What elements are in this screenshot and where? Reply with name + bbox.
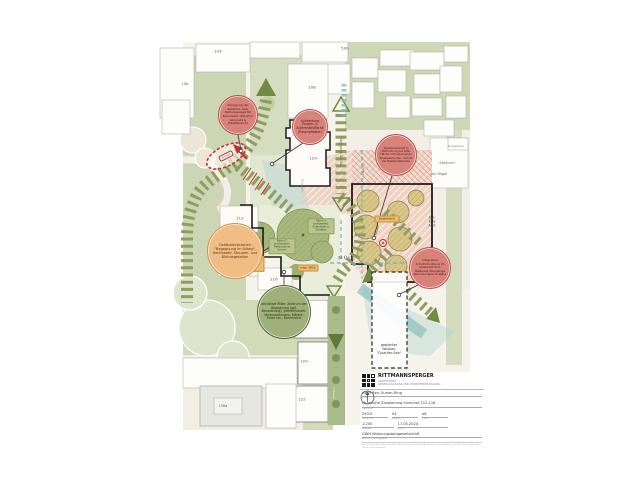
- bubble-vorzonen-text: Gebäudevorzonen "Begegnung im Alltag": H…: [211, 243, 259, 260]
- bubble-mitte-text: attraktive Mitte: Zentrum der Begegnung …: [261, 303, 307, 321]
- bubble-spiellandschaft: Spiellandschaft in Verbindung zur KiTa-F…: [375, 134, 417, 176]
- building-number-104: 104: [214, 49, 222, 54]
- baum1-label: Baum 1 (vorhanden): Aufenthalt im Schatt…: [308, 218, 335, 234]
- zentrum-label: Zentrum: [439, 161, 455, 165]
- title-block: RITTMANNSPERGER ARCHITEKTEN GENERALPLANU…: [360, 372, 484, 438]
- spielbereich-label: Spielbereich: [375, 215, 400, 222]
- uebergang-ost-label: Übergang QZ-Ost: [339, 138, 343, 166]
- site-plan-sheet: 104 50b 10b 108 110 112 114 116 118 120 …: [0, 0, 640, 480]
- bubble-vorzonen: Gebäudevorzonen "Begegnung im Alltag": H…: [207, 223, 263, 279]
- building-number-120: 120: [300, 359, 308, 364]
- south-walkway: [328, 296, 345, 425]
- building-number-50b: 50b: [341, 46, 349, 51]
- plan-number-label: Plan-Nr.: [392, 418, 418, 421]
- bubble-mitte: attraktive Mitte: Zentrum der Begegnung …: [257, 285, 311, 339]
- buergerhaus-label: Bürgerhaus: [448, 144, 463, 148]
- building-number-110: 110: [309, 156, 317, 161]
- firm-logo: [362, 374, 375, 387]
- bubble-zufahrt: Verlegung der Zufahrts- bzw. Rettungsweg…: [218, 95, 258, 135]
- building-number-108: 108: [308, 85, 316, 90]
- building-number-136a: 136a: [219, 404, 228, 408]
- bubble-pausenflaeche-text: Aufwertung Pausen- & Aufenthaltsfläche (…: [296, 120, 324, 135]
- fineprint: Alle Maße sind am Bau zu prüfen. Abweich…: [362, 442, 482, 449]
- site-plan-drawing: [0, 0, 640, 480]
- building-number-116: 116: [270, 277, 278, 282]
- muell-label: MÜLL: [338, 257, 356, 262]
- date-label: Datum: [398, 428, 448, 431]
- title-block-header: RITTMANNSPERGER ARCHITEKTEN GENERALPLANU…: [360, 372, 484, 390]
- fussweg-label: Fußweg: [332, 387, 336, 399]
- am-buegel-label: Am Bügel: [431, 172, 447, 176]
- scale-label: Maßstab: [362, 428, 394, 431]
- feuerwehr-label-1: Feuerwehr: [301, 179, 304, 193]
- eg-kita-label: EG: KiTa ABG: [424, 215, 440, 228]
- project-label: Projekt: [362, 397, 482, 400]
- bubble-schulhof: Integrative Schulhofnutzung im Spielarea…: [409, 247, 451, 289]
- title-block-rows: GWH Ben-Gurion-Ring Projekt räumliche Zi…: [360, 390, 484, 450]
- firm-sub2: GENERALPLANUNG UND PROJEKTENTWICKLUNG: [378, 383, 440, 386]
- muell-option-label: mögl. MÜLL: [298, 264, 319, 271]
- plan-content-label: Planinhalt: [362, 408, 482, 411]
- bubble-schulhof-text: Integrative Schulhofnutzung im Spielarea…: [413, 259, 447, 276]
- index-label: Index: [422, 418, 448, 421]
- bubble-pausenflaeche: Aufwertung Pausen- & Aufenthaltsfläche (…: [292, 109, 328, 145]
- bubble-zufahrt-text: Verlegung der Zufahrts- bzw. Rettungsweg…: [222, 104, 254, 125]
- feuerwehr-label-2: Feuerwehr: [362, 163, 365, 177]
- north-arrow-icon: [360, 390, 375, 405]
- neubau-label: geplanter Neubau "Quartier-See": [374, 343, 405, 357]
- building-number-10b: 10b: [182, 82, 189, 86]
- bubble-spiellandschaft-text: Spiellandschaft in Verbindung zur KiTa-F…: [379, 147, 413, 163]
- building-number-122: 122: [298, 397, 306, 402]
- baum2-label: Baum 2 (vorhanden): Treffpunkt im Grünen: [269, 238, 296, 254]
- firm-name: RITTMANNSPERGER: [378, 374, 440, 380]
- building-number-112: 112: [236, 216, 244, 221]
- client-label: Bauherr / Auftraggeber: [362, 438, 482, 441]
- project-number-label: Projekt-Nr.: [362, 418, 388, 421]
